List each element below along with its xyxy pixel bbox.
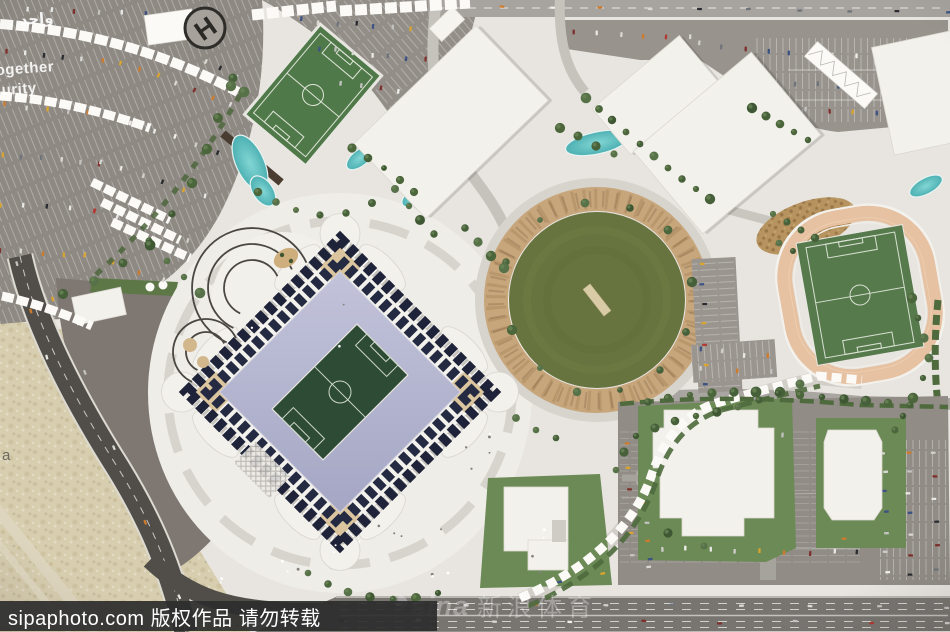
photo-vignette: [0, 0, 950, 632]
sipa-watermark-bar: sipaphoto.com 版权作品 请勿转载: [0, 601, 437, 631]
stadium-model-photo: H: [0, 0, 950, 632]
sina-suffix-text: 新浪体育: [477, 588, 597, 624]
sipa-watermark-text: sipaphoto.com 版权作品 请勿转载: [0, 602, 321, 631]
model-photo-svg: H: [0, 0, 950, 632]
